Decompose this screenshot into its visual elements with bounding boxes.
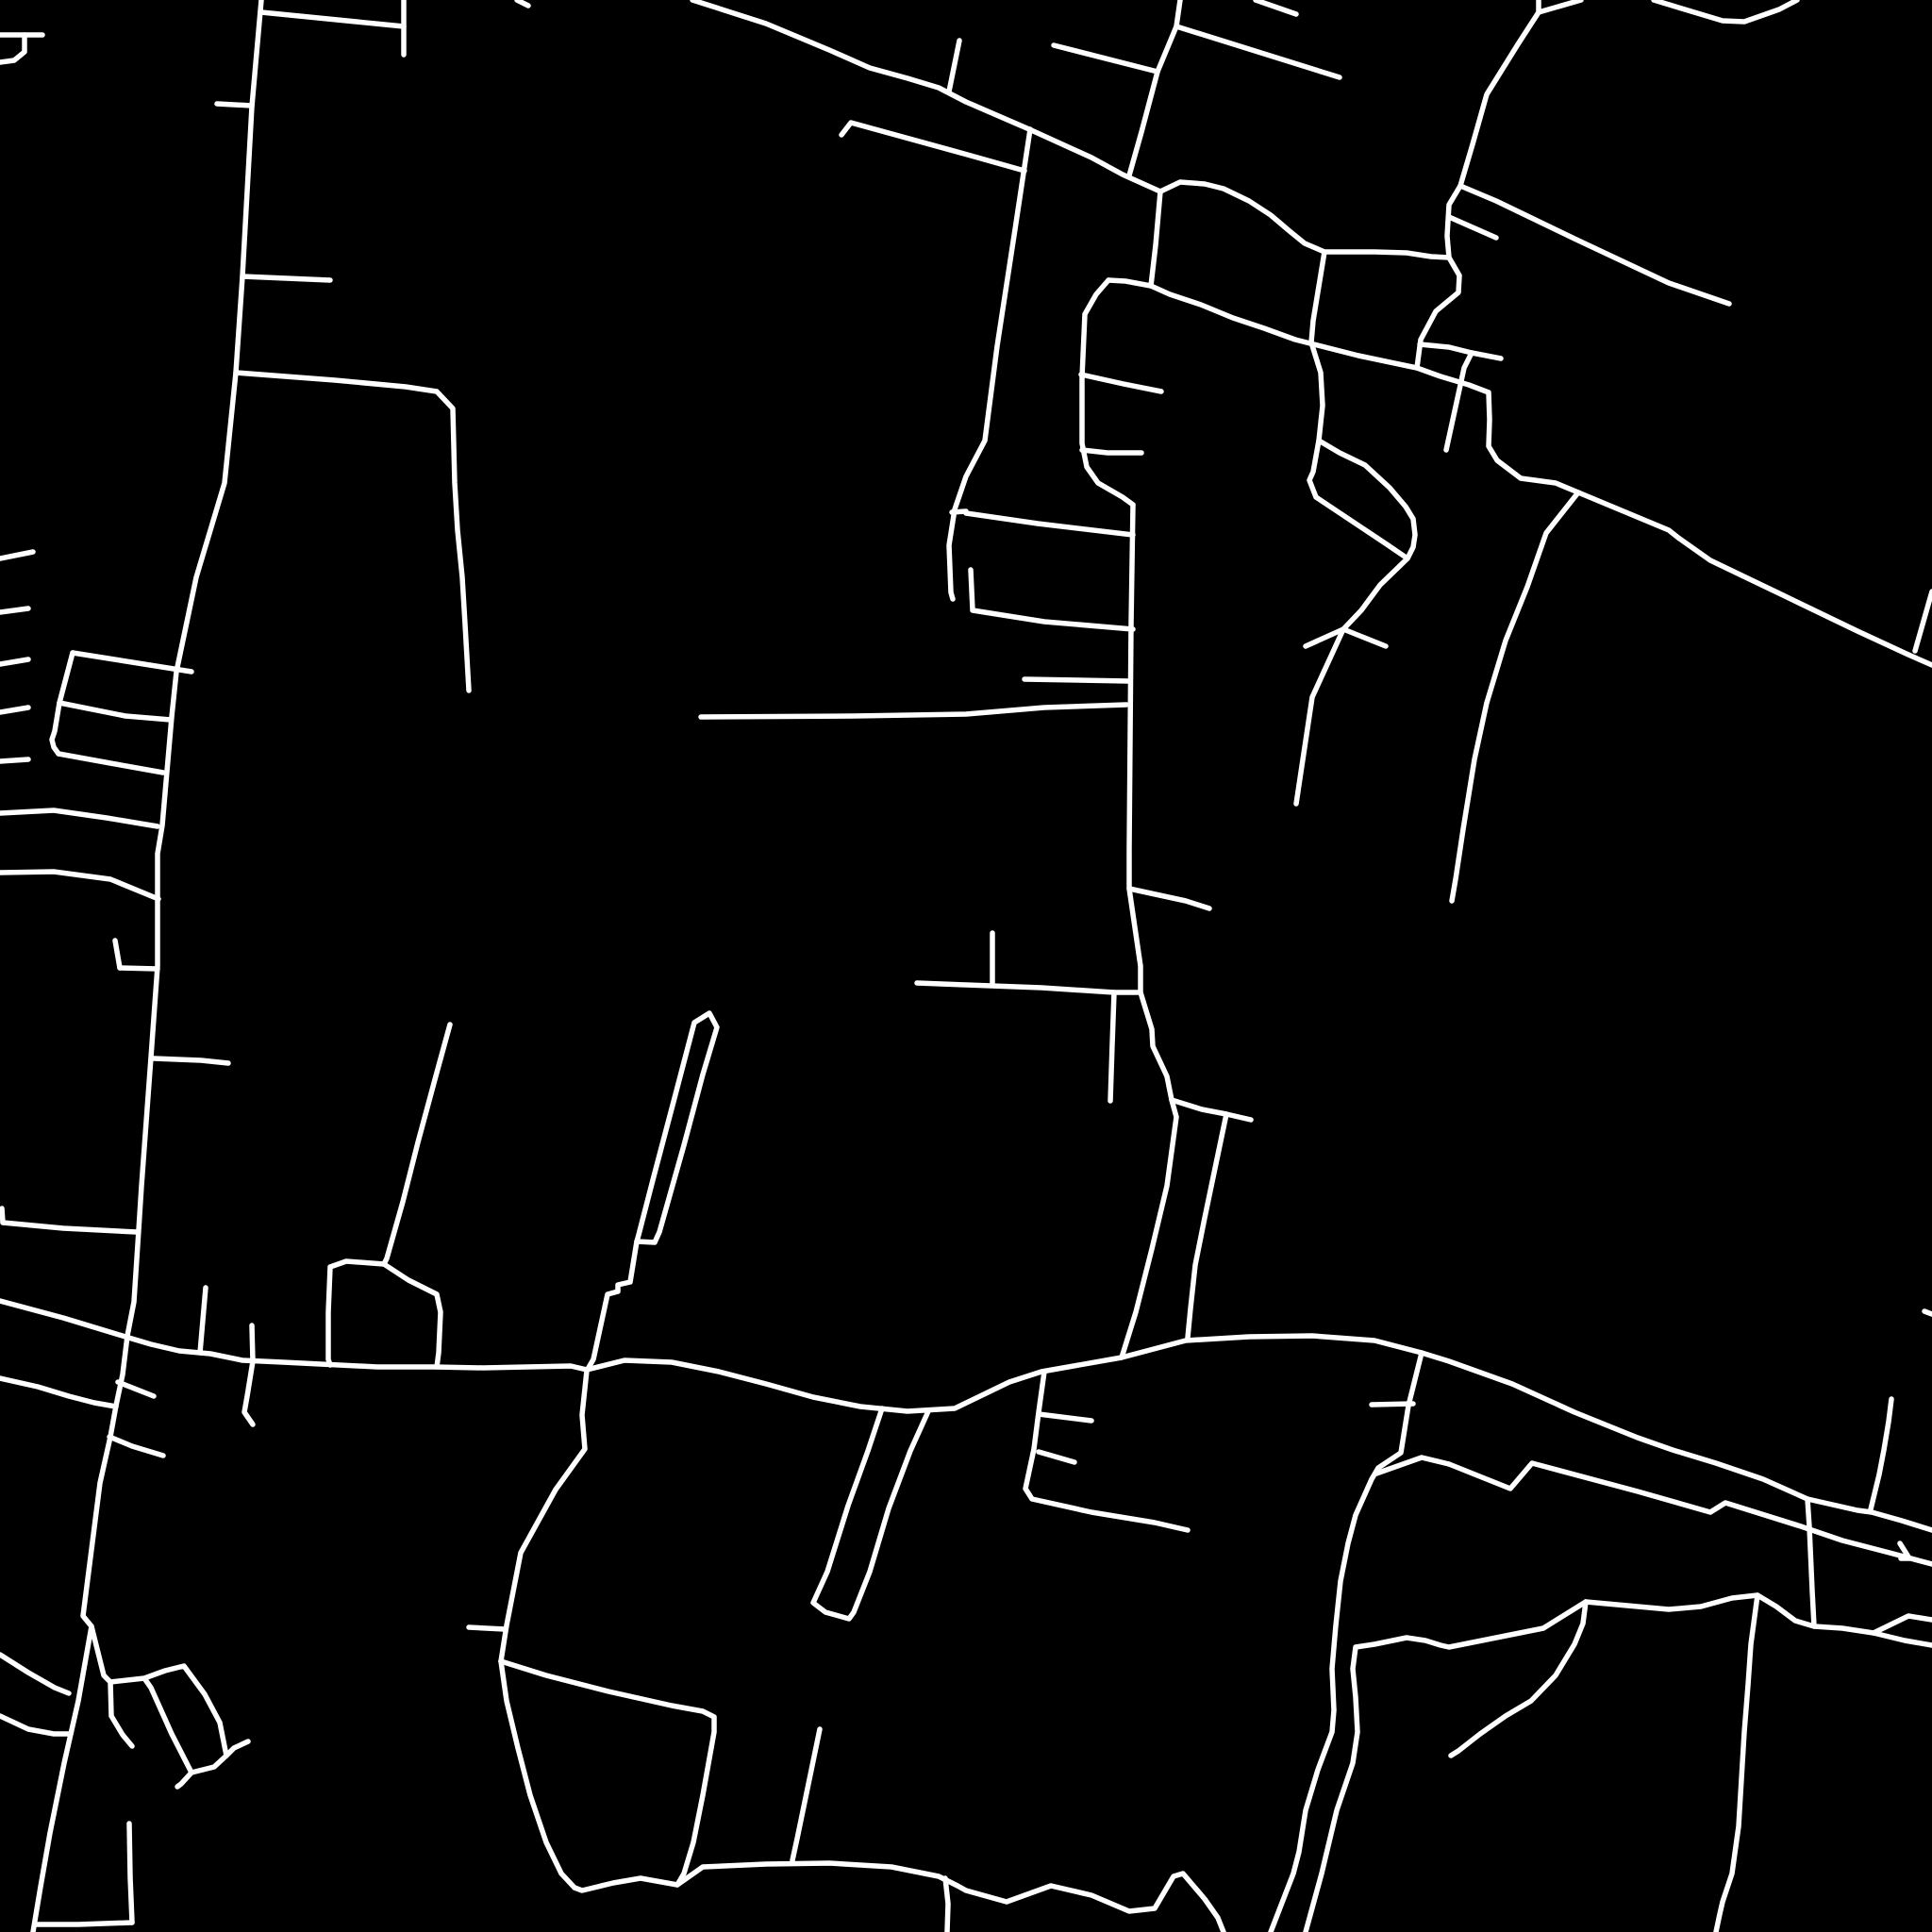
road-segment-stub-1026 [120, 968, 158, 969]
road-segment-spur-1550 [1039, 1452, 1074, 1462]
road-segment-v-1052 [1110, 992, 1114, 1101]
road-segment-ne-diag-long [1460, 186, 1729, 304]
road-segment-comb-2 [0, 608, 28, 612]
road-segment-spur-1506 [1039, 1414, 1091, 1421]
road-segment-nw-hook-curve [0, 35, 25, 62]
road-segment-branch-1465 [118, 1382, 154, 1396]
road-segment-tip-diagonal [1296, 558, 1407, 804]
road-segment-north-road-main [1417, 12, 1578, 492]
road-segment-spur-111 [217, 104, 252, 106]
road-segment-tilted-rect [110, 1666, 226, 1773]
road-segment-left-1461 [0, 1378, 116, 1407]
road-segment-zigzag-road [1449, 1463, 1932, 1564]
road-segment-branch-1523 [109, 1437, 163, 1456]
road-segment-long-diag-ne [384, 1024, 450, 1264]
road-segment-left-curve-1 [0, 1655, 69, 1693]
road-segment-pennant-loop [1309, 441, 1415, 558]
road-segment-nw-diagonal [692, 0, 1160, 192]
road-segment-tick-1725 [469, 1627, 505, 1629]
road-network-map [0, 0, 1932, 1932]
road-segment-h-757 [701, 705, 1126, 717]
road-segment-comb-6-long [0, 810, 158, 826]
road-segment-south-branch [1025, 1372, 1188, 1530]
road-segment-v-ext-a [1420, 344, 1501, 358]
road-segment-fork-a [501, 1661, 714, 1885]
road-segment-horiz-1296 [3, 1223, 137, 1232]
road-segment-dead-diag [1871, 1399, 1891, 1509]
road-segment-blob-left [328, 1261, 384, 1365]
road-segment-branch-ne [1176, 26, 1340, 77]
road-segment-rect-ext [226, 1741, 248, 1756]
road-segment-bottom-curvy-road [575, 1863, 1224, 1932]
road-segment-sw-horizontal [0, 872, 158, 899]
road-segment-top-stub [517, 0, 528, 6]
road-segment-sliver-tail [501, 1241, 637, 1661]
road-segment-g-left-corner [1108, 280, 1151, 286]
road-segment-branch-down-1991 [945, 1878, 948, 1932]
road-segment-fork-up-right [1874, 1616, 1932, 1633]
road-segment-comb-4 [0, 708, 28, 712]
road-segment-comb-1 [0, 552, 33, 558]
road-segment-branch-h [1081, 375, 1161, 391]
road-segment-bottom-horiz [35, 1923, 132, 1924]
map-canvas [0, 0, 1932, 1932]
road-segment-s-road-2 [1306, 1602, 1586, 1932]
road-segment-spur-1176 [1172, 1100, 1251, 1120]
road-segment-big-east-west-road [0, 1301, 1932, 1530]
road-segment-h-720 [1024, 679, 1129, 681]
road-segment-comb-3 [0, 659, 28, 664]
road-segment-north-road-top-b [1539, 0, 1581, 12]
road-segment-curl-hook [1900, 1543, 1909, 1558]
road-segment-junction-link [1151, 192, 1160, 286]
road-segment-curve-east [1160, 182, 1449, 258]
road-segment-top-vert-center [1129, 0, 1180, 175]
road-segment-block-bottom [58, 754, 163, 773]
road-segment-fork-sw-curve [1452, 492, 1578, 901]
road-segment-rounded-west [1082, 280, 1133, 505]
road-segment-branch-i [1082, 450, 1141, 453]
road-segment-stub-997 [115, 941, 120, 968]
road-segment-east-branch-cross [236, 373, 469, 691]
road-segment-branch-963 [1129, 889, 1209, 908]
road-segment-g-east [1151, 286, 1417, 368]
road-segment-h-659 [971, 570, 1133, 629]
road-segment-v-213 [200, 1288, 206, 1353]
road-segment-blob-right [384, 1264, 441, 1367]
road-segment-sliver-loop [637, 1013, 717, 1242]
road-segment-rect-tail [177, 1773, 192, 1787]
road-segment-tip-v-branches [1306, 629, 1386, 646]
road-segment-left-curve-2 [0, 1716, 71, 1734]
road-segment-h-1045 [917, 983, 1141, 992]
road-segment-kink-branch [92, 1626, 132, 1746]
road-segment-branch-nw [1054, 45, 1158, 72]
road-segment-parallel-road [1188, 1114, 1226, 1338]
road-segment-long-sw-line [949, 129, 1030, 599]
road-segment-s-road-1 [1271, 1353, 1422, 1932]
road-segment-v-ext-b [1446, 353, 1472, 450]
road-segment-v-267 [244, 1325, 253, 1424]
road-segment-ne-stub [1449, 217, 1496, 238]
road-segment-edge-stub-627 [1915, 591, 1932, 651]
road-segment-diag-1833 [792, 1729, 820, 1860]
road-segment-edge-dash [1924, 1311, 1932, 1314]
road-segment-central-vertical [1122, 505, 1176, 1357]
road-segment-fork-se-diag [1578, 492, 1932, 665]
road-segment-spur-293 [242, 276, 330, 280]
road-segment-comb-5 [0, 759, 28, 761]
road-segment-bottom-vert [129, 1824, 132, 1923]
road-segment-fork-b [501, 1661, 575, 1888]
road-segment-stub-diag-1017 [949, 41, 959, 92]
road-segment-link-vert [1807, 1499, 1814, 1626]
road-segment-block-mid [59, 703, 171, 720]
road-segment-long-vert-se [1716, 1595, 1757, 1932]
road-segment-tr-short-diag [1256, 0, 1296, 14]
road-segment-block-top [73, 653, 192, 672]
road-segment-mid-diag-892 [841, 123, 1024, 171]
road-segment-arc-tail [1451, 1602, 1586, 1756]
road-segment-h-544 [966, 513, 1133, 535]
road-segment-narrow-u [813, 1408, 928, 1619]
road-segment-spur-1122 [154, 1058, 228, 1063]
road-segment-top-v-curve [1654, 0, 1797, 22]
road-segment-top-slant [261, 12, 404, 26]
road-segment-s1-spur [1372, 1404, 1413, 1405]
